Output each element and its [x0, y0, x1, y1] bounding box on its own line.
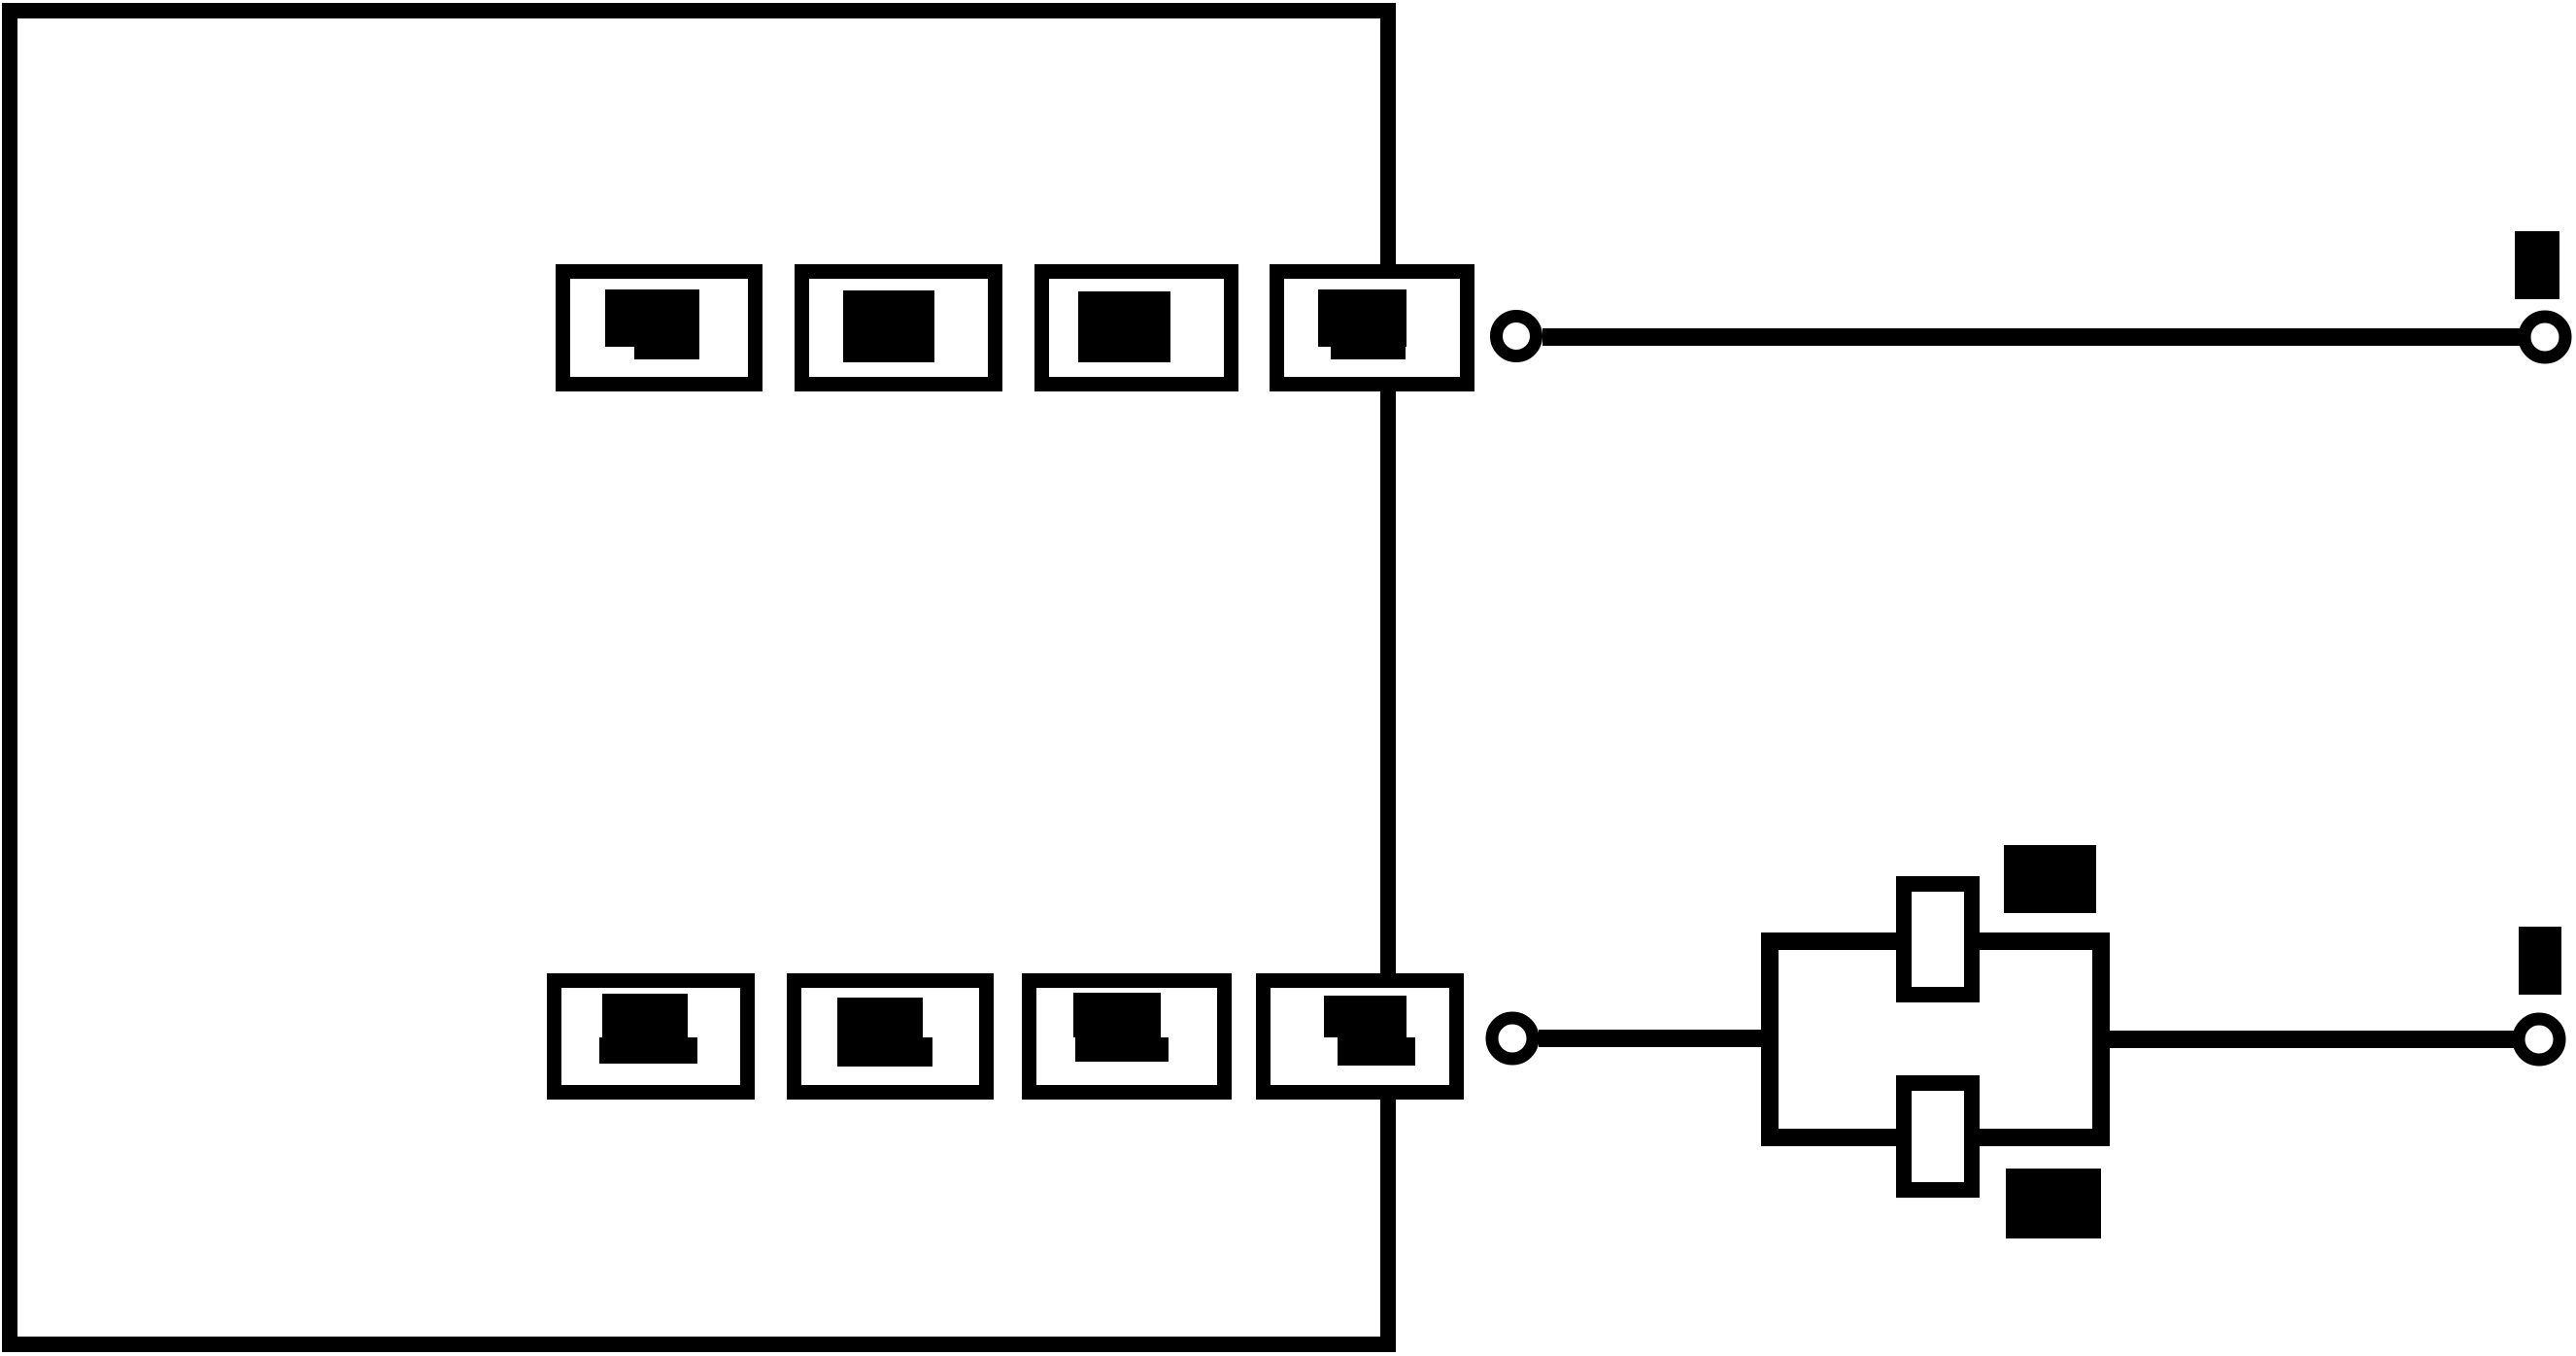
terminal-ring-line-end-bottom	[2519, 1019, 2559, 1060]
terminal-marker-bottom	[2519, 927, 2561, 995]
terminal-ring-panel-bottom	[1492, 1018, 1533, 1059]
port-glyph-top-1	[605, 289, 699, 347]
port-glyph-bottom-3	[1075, 1037, 1169, 1062]
terminal-ring-panel-top	[1497, 317, 1537, 356]
port-glyph-bottom-2	[837, 1037, 932, 1067]
port-glyph-top-4	[1318, 289, 1407, 347]
port-glyph-bottom-1	[602, 994, 688, 1037]
component-label-bottom	[2006, 1169, 2101, 1238]
terminal-marker-top	[2515, 231, 2559, 299]
port-glyph-top-3	[1078, 291, 1170, 362]
port-glyph-bottom-4	[1338, 1037, 1415, 1066]
component-label-top	[2004, 845, 2096, 913]
enclosure-outline	[10, 11, 1388, 1344]
port-glyph-bottom-1	[599, 1037, 697, 1064]
terminal-ring-line-end-top	[2525, 317, 2565, 357]
component-contact-top	[1904, 884, 1972, 995]
port-glyph-bottom-3	[1073, 993, 1161, 1037]
port-glyph-top-1	[634, 347, 699, 359]
port-glyph-top-4	[1331, 347, 1406, 359]
diagram-svg	[0, 0, 2576, 1356]
port-glyph-top-2	[843, 290, 934, 362]
component-contact-bottom	[1904, 1083, 1972, 1190]
schematic-diagram	[0, 0, 2576, 1356]
port-glyph-bottom-4	[1324, 996, 1407, 1037]
port-glyph-bottom-2	[837, 998, 923, 1037]
